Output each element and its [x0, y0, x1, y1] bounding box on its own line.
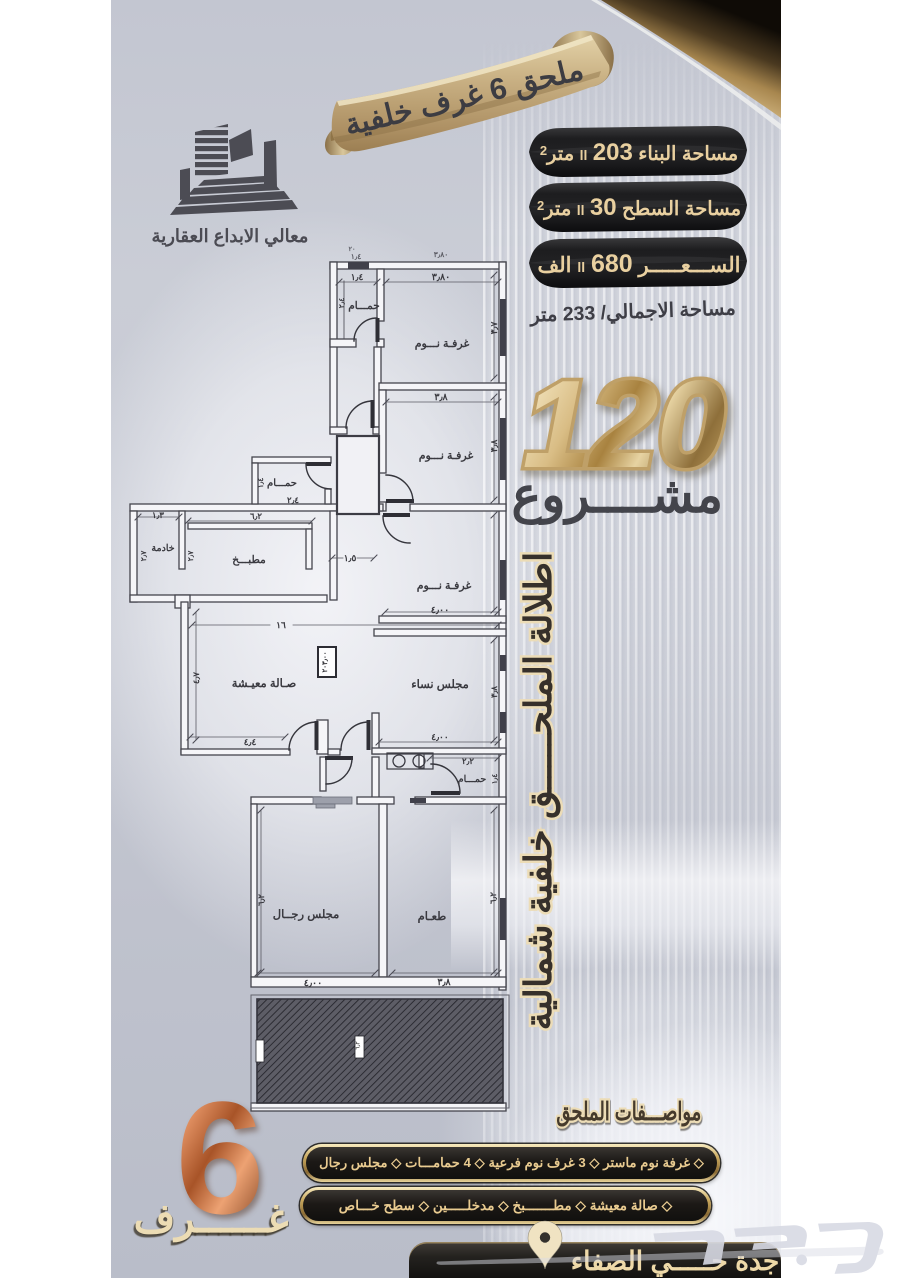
svg-text:٣٫٨: ٣٫٨	[489, 440, 499, 453]
svg-text:غرفـة نـــوم: غرفـة نـــوم	[415, 338, 470, 350]
svg-text:خادمة: خادمة	[151, 543, 174, 554]
svg-text:٣٫٨: ٣٫٨	[489, 686, 499, 698]
svg-text:٣٫٧: ٣٫٧	[489, 322, 499, 335]
svg-text:٤٫٠٠: ٤٫٠٠	[431, 605, 449, 616]
svg-text:٦٫٢: ٦٫٢	[356, 1041, 362, 1049]
svg-text:غرفـة نـــوم: غرفـة نـــوم	[417, 580, 472, 592]
svg-text:٤٫٠٠: ٤٫٠٠	[304, 978, 322, 989]
svg-text:٣٫٨: ٣٫٨	[434, 392, 448, 403]
svg-text:٣٫٨٠: ٣٫٨٠	[432, 272, 450, 283]
svg-text:٢٠: ٢٠	[349, 246, 356, 253]
svg-text:٤٫٠٠: ٤٫٠٠	[431, 732, 448, 742]
svg-text:مطبـــخ: مطبـــخ	[232, 554, 266, 566]
svg-text:٢٠٣٫٠٠: ٢٠٣٫٠٠	[322, 651, 329, 672]
svg-text:مجلس رجــال: مجلس رجــال	[273, 908, 340, 922]
svg-text:٦٫٢: ٦٫٢	[250, 511, 262, 521]
svg-text:١٫٤: ١٫٤	[256, 478, 265, 489]
svg-text:٦٫٢: ٦٫٢	[256, 894, 266, 906]
svg-text:٣٫٨٠: ٣٫٨٠	[434, 250, 449, 259]
svg-text:٦٫٢: ٦٫٢	[488, 892, 498, 904]
svg-text:٢٫٧: ٢٫٧	[186, 550, 195, 561]
svg-text:١٫٤: ١٫٤	[490, 774, 499, 785]
svg-text:٢٫٤: ٢٫٤	[287, 495, 299, 505]
svg-text:٢٫٤: ٢٫٤	[337, 298, 346, 309]
svg-text:١٫٣: ١٫٣	[152, 510, 164, 520]
svg-text:٢٫٧: ٢٫٧	[139, 550, 148, 561]
svg-text:١٫٤: ١٫٤	[351, 272, 364, 282]
svg-text:١٫٤: ١٫٤	[351, 252, 362, 261]
svg-text:١٦: ١٦	[276, 620, 286, 630]
svg-text:٢٫٢: ٢٫٢	[462, 756, 474, 766]
svg-text:حمـــام: حمـــام	[458, 774, 487, 785]
svg-text:حمـــام: حمـــام	[348, 300, 380, 312]
svg-text:حمـــام: حمـــام	[267, 478, 297, 489]
svg-text:٤٫٤: ٤٫٤	[244, 737, 257, 747]
svg-text:مواصـــفات الملحق: مواصـــفات الملحق	[556, 1097, 701, 1127]
svg-text:طعـام: طعـام	[418, 910, 447, 924]
svg-text:٤٫٧: ٤٫٧	[191, 672, 201, 684]
svg-text:١٫٥: ١٫٥	[344, 553, 357, 563]
svg-text:٣٫٨: ٣٫٨	[437, 977, 451, 988]
svg-text:صـالة معيـشة: صـالة معيـشة	[232, 677, 297, 690]
svg-text:غرفـة نـــوم: غرفـة نـــوم	[419, 450, 474, 462]
svg-text:مجلس نساء: مجلس نساء	[411, 678, 469, 692]
